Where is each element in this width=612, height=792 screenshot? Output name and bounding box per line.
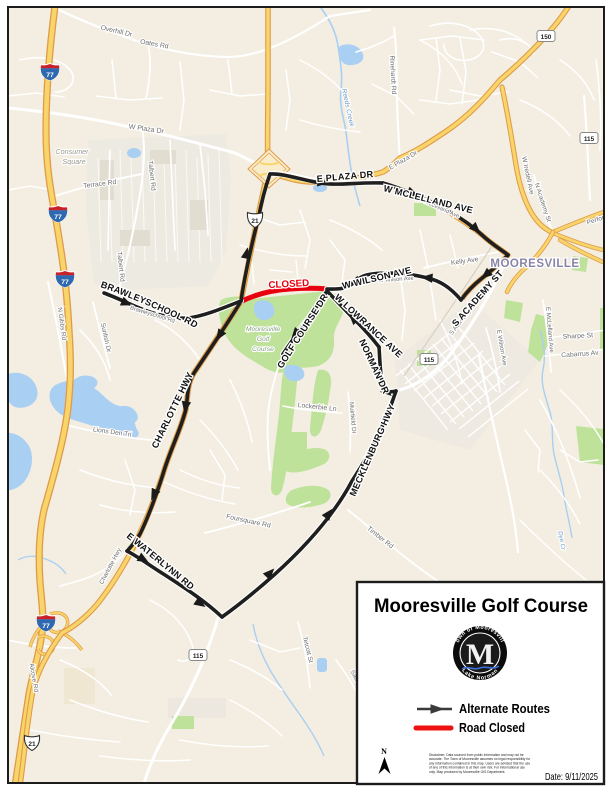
svg-text:Mooresville Golf Course: Mooresville Golf Course (374, 595, 588, 617)
svg-text:CLOSED: CLOSED (268, 278, 309, 291)
svg-text:Course: Course (252, 346, 274, 353)
svg-text:21: 21 (28, 741, 36, 748)
svg-text:Square: Square (62, 157, 85, 166)
svg-text:115: 115 (584, 136, 595, 143)
svg-text:77: 77 (46, 72, 54, 79)
svg-text:Consumer: Consumer (55, 147, 89, 156)
svg-text:21: 21 (251, 218, 259, 225)
svg-text:77: 77 (42, 623, 50, 630)
svg-text:Golf: Golf (257, 336, 271, 343)
svg-text:115: 115 (193, 653, 204, 660)
svg-text:MOORESVILLE: MOORESVILLE (490, 258, 579, 270)
svg-text:only. Map produced by Mooresvi: only. Map produced by Mooresville GIS De… (429, 770, 505, 774)
svg-text:77: 77 (54, 214, 62, 221)
svg-text:Alternate Routes: Alternate Routes (459, 701, 550, 716)
svg-text:M: M (466, 638, 494, 671)
svg-text:115: 115 (424, 357, 435, 364)
svg-text:N: N (381, 747, 387, 756)
svg-text:Date: 9/11/2025: Date: 9/11/2025 (545, 771, 598, 783)
svg-text:Road Closed: Road Closed (459, 720, 525, 735)
svg-text:150: 150 (541, 34, 552, 41)
svg-text:77: 77 (61, 279, 69, 286)
svg-text:Mooresville: Mooresville (246, 326, 281, 333)
